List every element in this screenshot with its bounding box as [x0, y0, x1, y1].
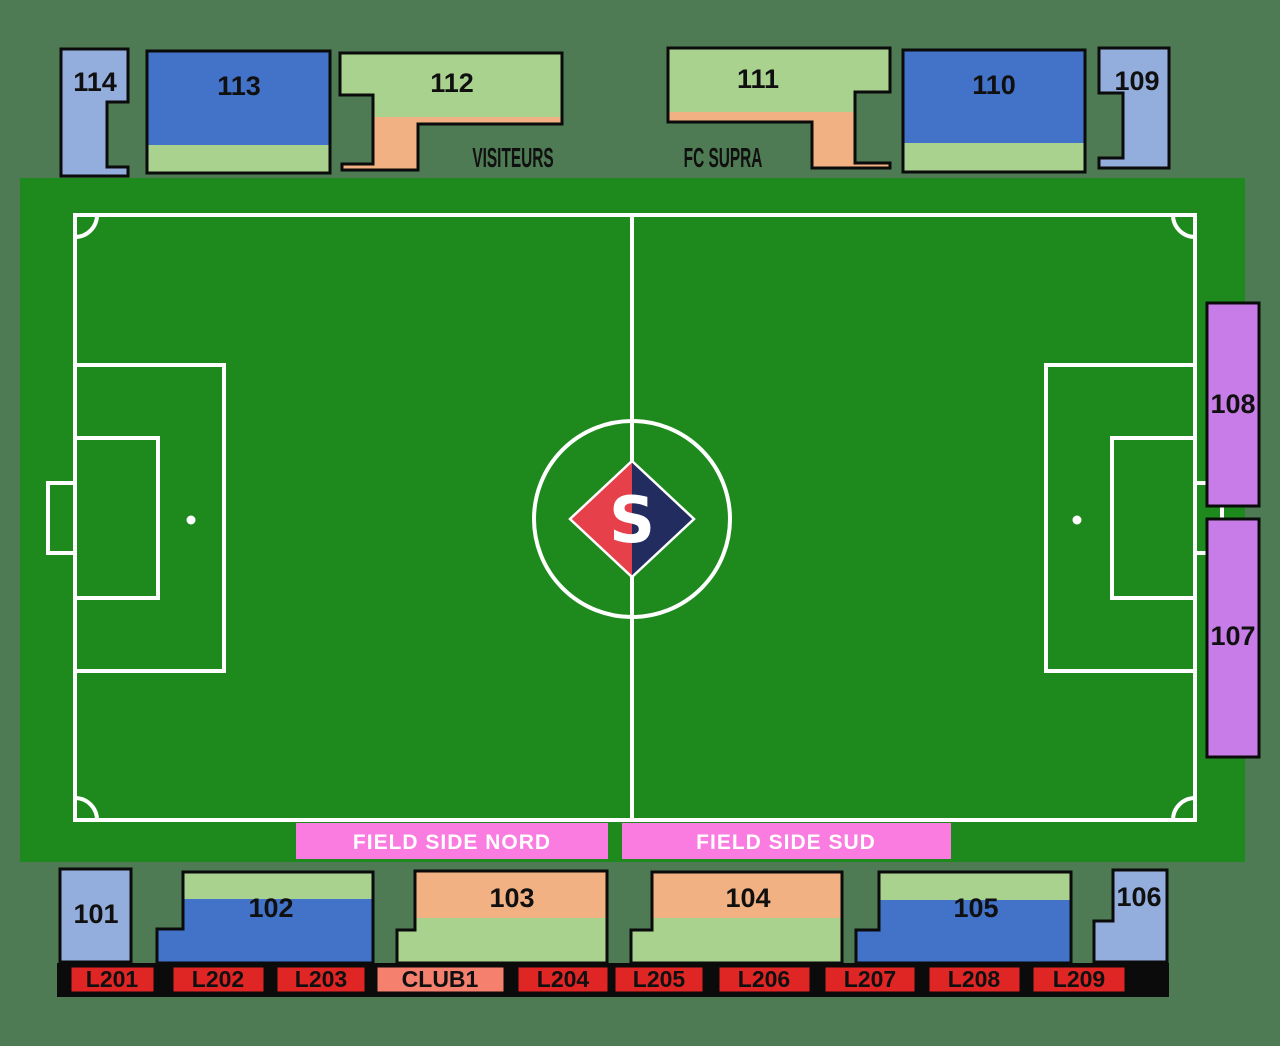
section-101[interactable]: 101: [60, 869, 131, 962]
section-107-label: 107: [1210, 621, 1255, 651]
section-105[interactable]: 105: [856, 872, 1071, 963]
section-101-label: 101: [73, 899, 118, 929]
section-107[interactable]: 107: [1207, 519, 1259, 757]
lounge-L207[interactable]: L207: [824, 966, 916, 993]
field-side-sud-label: FIELD SIDE SUD: [696, 831, 876, 854]
lounge-L201-label: L201: [86, 966, 139, 992]
section-110-lower[interactable]: [903, 143, 1085, 172]
section-114-label: 114: [73, 67, 117, 97]
section-field-side-sud[interactable]: FIELD SIDE SUD: [622, 823, 951, 859]
stadium-seating-map: S FIELD SIDE NORD FIELD SIDE SUD L201 L2…: [0, 0, 1280, 1046]
section-113-label: 113: [217, 71, 261, 101]
section-104-label: 104: [725, 883, 770, 913]
lounge-L206[interactable]: L206: [718, 966, 811, 993]
lounge-L208[interactable]: L208: [928, 966, 1021, 993]
section-103[interactable]: 103: [397, 871, 607, 963]
section-108-label: 108: [1210, 389, 1255, 419]
section-102-label: 102: [248, 893, 293, 923]
lounge-L204-label: L204: [537, 966, 590, 992]
field-side-nord-label: FIELD SIDE NORD: [353, 831, 551, 854]
section-105-label: 105: [953, 893, 998, 923]
section-108[interactable]: 108: [1207, 303, 1259, 506]
lounge-L205[interactable]: L205: [614, 966, 704, 993]
penalty-spot-right: [1073, 516, 1082, 525]
section-110-label: 110: [972, 70, 1016, 100]
lounge-CLUB1[interactable]: CLUB1: [376, 966, 505, 993]
section-field-side-nord[interactable]: FIELD SIDE NORD: [296, 823, 608, 859]
section-109-label: 109: [1114, 66, 1159, 96]
section-102[interactable]: 102: [157, 872, 373, 963]
lounge-L203-label: L203: [295, 966, 347, 992]
visiteurs-label: VISITEURS: [472, 142, 553, 173]
lounge-CLUB1-label: CLUB1: [402, 966, 479, 992]
lounge-L201[interactable]: L201: [70, 966, 155, 993]
lounge-L206-label: L206: [738, 966, 790, 992]
section-113-lower[interactable]: [147, 145, 330, 173]
section-112-label: 112: [430, 68, 474, 98]
lounge-L204[interactable]: L204: [517, 966, 609, 993]
section-113[interactable]: 113: [147, 51, 330, 173]
club-logo-letter: S: [609, 484, 655, 558]
penalty-spot-left: [187, 516, 196, 525]
section-103-label: 103: [489, 883, 534, 913]
section-110[interactable]: 110: [903, 50, 1085, 172]
section-111-label: 111: [737, 64, 779, 94]
section-106-label: 106: [1116, 882, 1161, 912]
lounge-L209-label: L209: [1053, 966, 1105, 992]
lounge-L205-label: L205: [633, 966, 686, 992]
fc-supra-label: FC SUPRA: [684, 142, 763, 173]
lounge-L203[interactable]: L203: [276, 966, 366, 993]
section-104[interactable]: 104: [631, 872, 842, 963]
lounge-L209[interactable]: L209: [1032, 966, 1126, 993]
lounge-L208-label: L208: [948, 966, 1001, 992]
lounge-L202[interactable]: L202: [172, 966, 265, 993]
lounge-L202-label: L202: [192, 966, 244, 992]
lounge-L207-label: L207: [844, 966, 896, 992]
